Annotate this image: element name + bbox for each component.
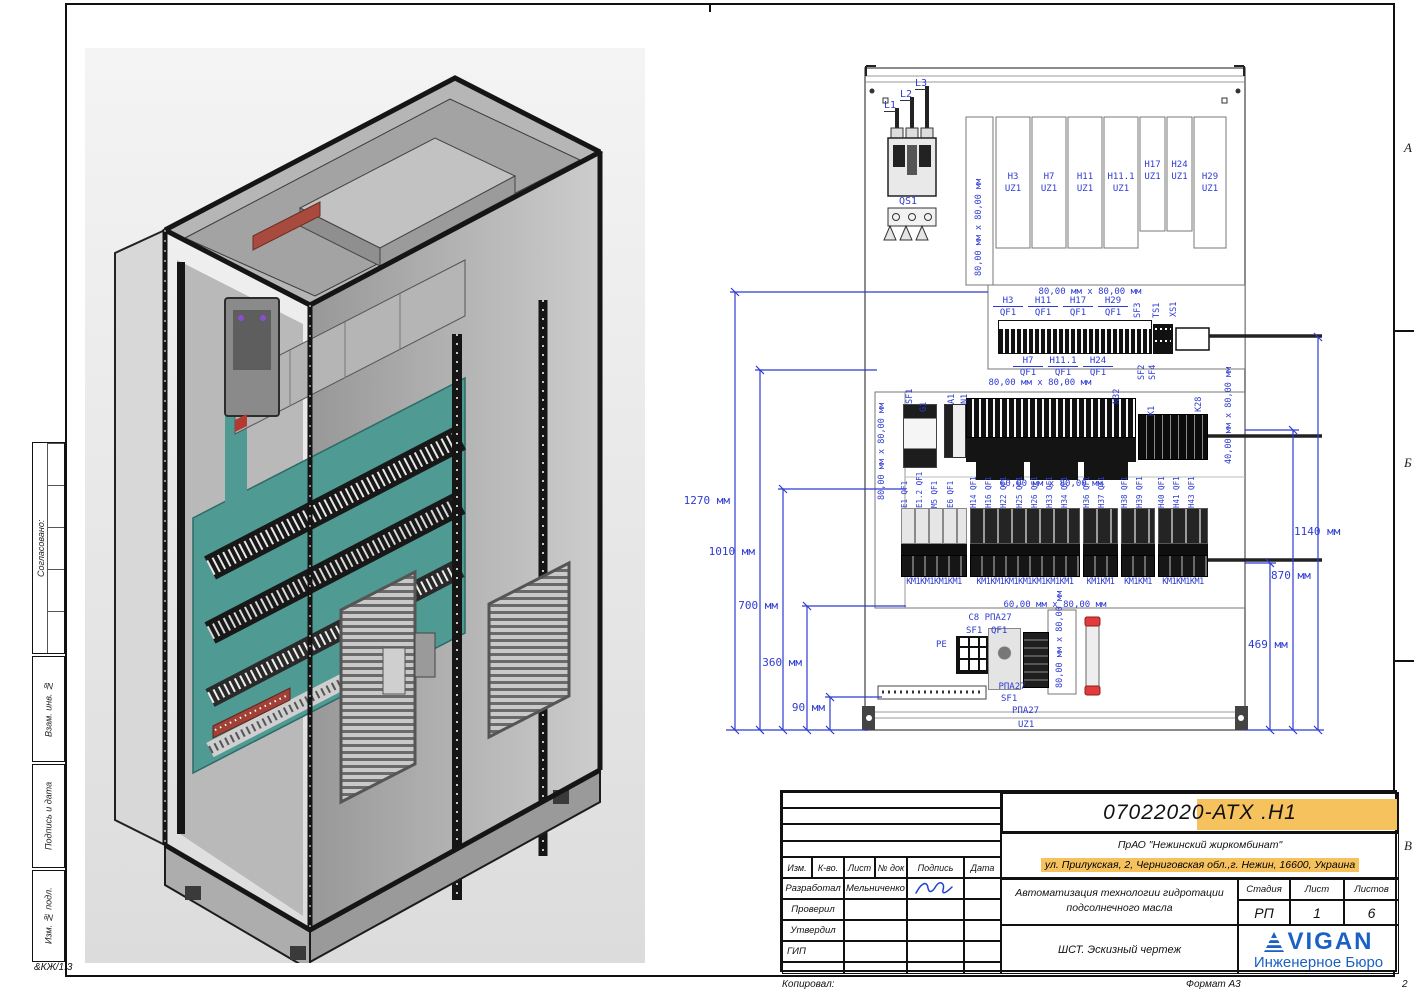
dim-1010: 1010 мм — [701, 545, 755, 558]
row-developed: Разработал — [782, 878, 844, 899]
breaker-group-4: H38 QF1H39 QF1 КМ1КМ1 — [1121, 468, 1155, 592]
stage-header: Стадия — [1238, 879, 1290, 900]
col-kvo: К-во. — [812, 857, 844, 878]
size-label-row1: 80,00 мм x 80,00 мм — [974, 179, 984, 276]
company-address: ул. Прилукская, 2, Черниговская обл.,г. … — [1041, 858, 1359, 872]
din-rail — [1083, 544, 1118, 555]
uz1-box-unit: UZ1 — [1104, 184, 1138, 194]
breaker-label: H40 QF1 — [1158, 468, 1173, 508]
breaker-label: H16 QF1 — [985, 468, 1000, 508]
contactor-labels: КМ1КМ1 — [1083, 577, 1118, 590]
uz1-box-unit: UZ1 — [1032, 184, 1066, 194]
size-label-row4-top: 60,00 мм x 80,00 мм — [1000, 479, 1100, 489]
uz1-box-name: H29 — [1194, 172, 1226, 182]
breaker-label: H43 QF1 — [1188, 468, 1203, 508]
row2-bottom-qf: QF1 — [1083, 368, 1113, 378]
dim-870: 870 мм — [1271, 569, 1325, 582]
uz1-box-unit: UZ1 — [996, 184, 1030, 194]
row3-label-n1: N1 — [960, 394, 970, 404]
row3-label-g1: G1 — [919, 402, 929, 412]
breaker-label: E1.2 QF1 — [916, 468, 931, 508]
row2-bottom-name: H24 — [1083, 356, 1113, 367]
size-label-40x80: 40,00 мм x 80,00 мм — [1224, 367, 1234, 464]
contactors — [1121, 555, 1155, 577]
terminal-strip-row2 — [998, 320, 1152, 354]
uz1-box-name: H17 — [1140, 160, 1165, 170]
uz1-box-unit: UZ1 — [1068, 184, 1102, 194]
company-cell: ПрАО "Нежинский жиркомбинат" ул. Прилукс… — [1001, 833, 1399, 879]
contactors — [970, 555, 1080, 577]
row2-top-name: H11 — [1028, 296, 1058, 307]
uz1-box-unit: UZ1 — [1194, 184, 1226, 194]
format-label: Формат А3 — [1186, 979, 1241, 990]
sheet-title: ШСТ. Эскизный чертеж — [1001, 925, 1238, 974]
breaker-label: E1 QF1 — [901, 468, 916, 508]
col-podpis: Подпись — [907, 857, 964, 878]
breaker-label: H41 QF1 — [1173, 468, 1188, 508]
contactors — [1083, 555, 1118, 577]
breakers — [901, 508, 967, 544]
project-cell: Автоматизация технологии гидротации подс… — [1001, 879, 1238, 925]
stage-value: РП — [1238, 900, 1290, 925]
relay-block-k1-k28 — [1138, 414, 1208, 460]
phase-label-l2: L2 — [900, 89, 912, 101]
contactor-labels: КМ1КМ1КМ1 — [1158, 577, 1208, 590]
phase-label-l3: L3 — [915, 78, 927, 90]
uz1-box-unit: UZ1 — [1140, 172, 1165, 182]
contactor-bottom — [1023, 632, 1049, 688]
sheets-header: Листов — [1344, 879, 1399, 900]
col-data: Дата — [964, 857, 1001, 878]
motor-starter-rpa27 — [988, 628, 1021, 690]
sheet-header: Лист — [1290, 879, 1344, 900]
company-address-wrap: ул. Прилукская, 2, Черниговская обл.,г. … — [1002, 855, 1398, 873]
vigan-logo: VIGAN Инженерное Бюро — [1239, 926, 1398, 973]
dim-469: 469 мм — [1248, 638, 1302, 651]
uz1-box-name: H3 — [996, 172, 1030, 182]
corner-code: &КЖ/1.3 — [34, 962, 72, 973]
row2-top-name: H17 — [1063, 296, 1093, 307]
signature-glyph — [908, 879, 963, 898]
dim-1270: 1270 мм — [676, 494, 730, 507]
row2-vertical-label: SF4 — [1148, 365, 1158, 380]
contactor-labels: КМ1КМ1КМ1КМ1КМ1КМ1КМ1 — [970, 577, 1080, 590]
drawing-sheet: А Б В Согласовано: Взам. инв. № Подпись … — [0, 0, 1414, 994]
label-c8-rpa27: С8 РПА27 — [958, 613, 1022, 623]
row-gip: ГИП — [782, 941, 844, 962]
row3-label-n32: N32 — [1112, 389, 1122, 404]
doc-number: 07022020-АТХ .Н1 — [1003, 794, 1397, 831]
project-line1: Автоматизация технологии гидротации — [1002, 887, 1237, 899]
breaker-labels: H40 QF1H41 QF1H43 QF1 — [1158, 468, 1208, 508]
breakers — [970, 508, 1080, 544]
din-rail — [1158, 544, 1208, 555]
contactor-labels: КМ1КМ1КМ1КМ1 — [901, 577, 967, 590]
title-block: Изм. К-во. Лист № док Подпись Дата Разра… — [780, 790, 1397, 972]
contactor-labels: КМ1КМ1 — [1121, 577, 1155, 590]
breakers — [1158, 508, 1208, 544]
row2-vertical-label: SF2 — [1137, 365, 1147, 380]
row2-vertical-label: SF3 — [1133, 303, 1143, 318]
row3-label-k1: K1 — [1147, 406, 1157, 416]
uz1-box-name: H11.1 — [1104, 172, 1138, 182]
developer-signature — [907, 878, 964, 899]
col-list: Лист — [844, 857, 875, 878]
phase-label-l1: L1 — [884, 100, 896, 112]
breakers — [1083, 508, 1118, 544]
page-number: 2 — [1402, 979, 1408, 990]
row2-vertical-label: TS1 — [1152, 303, 1162, 318]
uz1-box-name: H7 — [1032, 172, 1066, 182]
label-sf1-bottom: SF1 — [1001, 694, 1017, 704]
label-rpa27-2: РПА27 — [1012, 706, 1039, 716]
row-approved: Утвердил — [782, 920, 844, 941]
breaker-labels: H38 QF1H39 QF1 — [1121, 468, 1155, 508]
row2-vertical-label: XS1 — [1169, 302, 1179, 317]
company-name: ПрАО "Нежинский жиркомбинат" — [1002, 839, 1398, 851]
label-sf1: SF1 — [966, 626, 982, 636]
io-module-base — [966, 438, 1136, 462]
size-label-left-vertical: 80,00 мм x 80,00 мм — [877, 403, 887, 500]
row2-bottom-qf: QF1 — [1013, 368, 1043, 378]
copied-label: Копировал: — [782, 979, 835, 990]
col-izm: Изм. — [782, 857, 812, 878]
uz1-box-unit: UZ1 — [1167, 172, 1192, 182]
row-checked: Проверил — [782, 899, 844, 920]
dim-90: 90 мм — [771, 701, 825, 714]
logo-subtext: Инженерное Бюро — [1254, 954, 1383, 971]
dim-700: 700 мм — [724, 599, 778, 612]
row2-bottom-name: H11.1 — [1048, 356, 1078, 367]
breaker-label: H14 QF1 — [970, 468, 985, 508]
row2-bottom-qf: QF1 — [1048, 368, 1078, 378]
project-line2: подсолнечного масла — [1002, 902, 1237, 914]
qs1-label: QS1 — [899, 196, 917, 207]
row3-label-a1: A1 — [947, 394, 957, 404]
uz1-box-name: H11 — [1068, 172, 1102, 182]
module-a1-n1 — [944, 404, 966, 458]
logo-text: VIGAN — [1287, 928, 1373, 956]
contactors — [901, 555, 967, 577]
vigan-logo-icon — [1263, 931, 1285, 953]
contactors — [1158, 555, 1208, 577]
din-rail — [970, 544, 1080, 555]
breakers — [1121, 508, 1155, 544]
row3-label-sf1: SF1 — [905, 389, 915, 404]
dim-360: 360 мм — [748, 656, 802, 669]
row2-top-qf: QF1 — [1063, 308, 1093, 318]
label-rpa27: РПА27 — [992, 682, 1032, 692]
breaker-label: H38 QF1 — [1121, 468, 1136, 508]
breaker-label: E6 QF1 — [947, 468, 962, 508]
label-qf1: QF1 — [991, 626, 1007, 636]
logo-cell: VIGAN Инженерное Бюро — [1238, 925, 1399, 974]
size-label-row3: 80,00 мм x 80,00 мм — [985, 378, 1095, 388]
size-label-bottom-box: 80,00 мм x 80,00 мм — [1055, 591, 1065, 688]
row2-top-name: H3 — [993, 296, 1023, 307]
row2-top-qf: QF1 — [1028, 308, 1058, 318]
row2-bottom-name: H7 — [1013, 356, 1043, 367]
sheets-value: 6 — [1344, 900, 1399, 925]
din-rail — [901, 544, 967, 555]
breaker-group-5: H40 QF1H41 QF1H43 QF1 КМ1КМ1КМ1 — [1158, 468, 1208, 592]
col-ndok: № док — [875, 857, 907, 878]
row2-top-name: H29 — [1098, 296, 1128, 307]
row2-top-qf: QF1 — [1098, 308, 1128, 318]
doc-number-cell: 07022020-АТХ .Н1 — [1001, 792, 1399, 833]
power-supply-sf1-g1 — [903, 404, 937, 468]
dim-1140: 1140 мм — [1294, 525, 1348, 538]
developer-name: Мельниченко — [844, 878, 907, 899]
breaker-label: M5 QF1 — [931, 468, 946, 508]
row2-top-qf: QF1 — [993, 308, 1023, 318]
uz1-box-name: H24 — [1167, 160, 1192, 170]
io-module-row — [966, 398, 1136, 438]
label-pe: РЕ — [936, 640, 947, 650]
breaker-labels: E1 QF1E1.2 QF1M5 QF1E6 QF1 — [901, 468, 967, 508]
din-rail — [1121, 544, 1155, 555]
pe-terminal-block — [956, 636, 988, 674]
label-uz1: UZ1 — [1018, 720, 1034, 730]
row3-label-k28: K28 — [1194, 397, 1204, 412]
sheet-value: 1 — [1290, 900, 1344, 925]
breaker-label: H39 QF1 — [1136, 468, 1151, 508]
breaker-group-1: E1 QF1E1.2 QF1M5 QF1E6 QF1 КМ1КМ1КМ1КМ1 — [901, 468, 967, 592]
